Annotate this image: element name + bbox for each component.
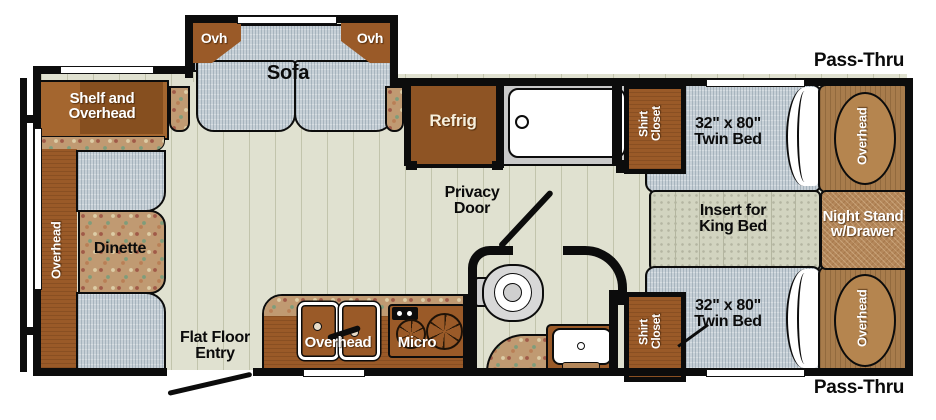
pass-thru-top-label: Pass-Thru [798, 50, 920, 72]
pass-thru-bottom-label: Pass-Thru [798, 377, 920, 399]
refrig-jamb-right [496, 84, 504, 168]
floorplan: Ovh Ovh Sofa Shelf and Overhead Overhead… [0, 0, 936, 420]
sofa-label: Sofa [238, 61, 338, 85]
window-dinette-slide [34, 128, 42, 290]
bath-wall-left [468, 268, 477, 372]
overhead-bed-top-label: Overhead [848, 96, 876, 176]
toilet-seat-center [503, 283, 522, 302]
window-sofa-slide [237, 16, 337, 24]
dinette-slide-stub-bottom [20, 327, 34, 335]
shower-drain [515, 115, 529, 129]
window-kitchen [303, 369, 365, 377]
dinette-slide-stub-top [20, 115, 34, 123]
dinette-overhead-label: Overhead [42, 210, 70, 290]
dinette-label: Dinette [78, 240, 162, 258]
insert-king-label: Insert for King Bed [649, 198, 817, 240]
end-table-left [169, 86, 190, 132]
range-knob [397, 311, 402, 316]
twin-bed-bottom-label: 32" x 80" Twin Bed [656, 294, 800, 334]
ovh-left-label: Ovh [192, 29, 236, 47]
end-table-right [385, 86, 404, 132]
range-knob-panel [392, 307, 418, 320]
wall-top-right [390, 78, 913, 86]
bath-wall-right [609, 290, 618, 372]
refrig-jamb-foot-left [406, 161, 417, 170]
ovh-right-label: Ovh [348, 29, 392, 47]
dinette-bench-bottom [76, 292, 166, 372]
vanity-sink-drain [577, 342, 585, 350]
night-stand-label: Night Stand w/Drawer [816, 202, 910, 246]
window-bedroom-top [706, 79, 805, 87]
shelf-overhead-label: Shelf and Overhead [40, 86, 164, 126]
refrig-jamb-foot-right [492, 161, 503, 170]
refrig-label: Refrig [410, 111, 496, 131]
privacy-door-label: Privacy Door [430, 182, 514, 220]
sink-drain-left [313, 322, 322, 331]
flat-floor-entry-label: Flat Floor Entry [164, 327, 266, 365]
dinette-bench-top [76, 150, 166, 212]
twin-bed-top-label: 32" x 80" Twin Bed [656, 112, 800, 152]
sofa-slide-wall-right [390, 15, 398, 86]
micro-label: Micro [386, 333, 448, 353]
overhead-bed-bottom-label: Overhead [848, 278, 876, 358]
kitchen-overhead-label: Overhead [288, 333, 388, 353]
bedroom-wall-left-top [612, 84, 622, 164]
range-knob [407, 311, 412, 316]
entry-door-swing [167, 372, 252, 396]
refrig-base-line [406, 164, 503, 167]
window-front-left [60, 66, 154, 74]
window-bedroom-bottom [706, 369, 805, 377]
wall-bottom-left [37, 368, 167, 376]
